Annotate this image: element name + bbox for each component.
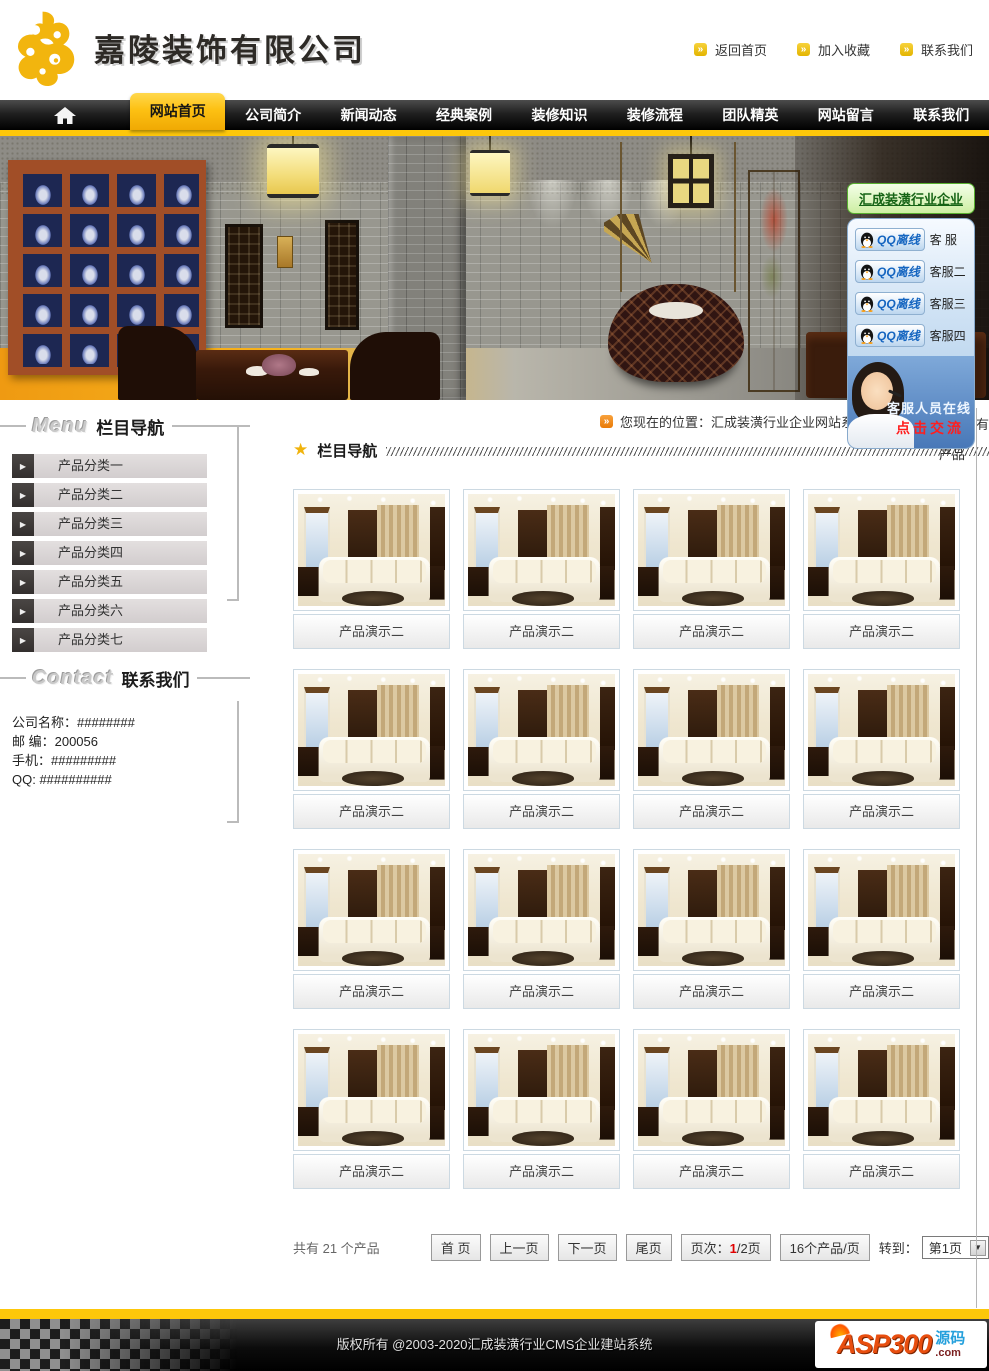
menu-section-header: Menu 栏目导航 [0,415,250,437]
product-photo [298,674,445,786]
photo-panel [770,867,785,930]
top-link-label: 联系我们 [921,40,973,59]
top-links: »返回首页 »加入收藏 »联系我们 [694,40,973,59]
product-card[interactable]: 产品演示二 [803,1029,960,1189]
product-image-frame [293,1029,450,1151]
photo-ottoman [682,951,744,966]
qq-penguin-icon [860,328,874,344]
main-nav: 网站首页 公司简介 新闻动态 经典案例 装修知识 装修流程 团队精英 网站留言 … [0,100,989,130]
product-image-frame [633,489,790,611]
photo-ottoman [512,951,574,966]
photo-panel [940,687,955,750]
photo-curtain-dark [348,690,377,744]
main-panel: » 您现在的位置：汇成装潢行业企业网站系统 有 产品 ★ 栏目导航 [293,400,989,1261]
content-area: Menu 栏目导航 ▶ 产品分类一 ▶ 产品分类二 [0,400,989,1308]
photo-curtain-dark [858,1050,887,1104]
photo-ottoman [342,1131,404,1146]
product-card[interactable]: 产品演示二 [293,849,450,1009]
photo-ottoman [852,771,914,786]
product-card[interactable]: 产品演示二 [633,1029,790,1189]
photo-curtain-dark [518,510,547,564]
banner-wall-art [277,236,293,268]
page: 嘉陵装饰有限公司 »返回首页 »加入收藏 »联系我们 网站首页 公司简介 新闻动… [0,0,989,1371]
contact-info-line: 邮 编：200056 [12,732,250,751]
sidebar: Menu 栏目导航 ▶ 产品分类一 ▶ 产品分类二 [0,400,250,789]
qq-penguin-icon [860,264,874,280]
photo-curtain-dark [688,870,717,924]
product-image-frame [633,849,790,971]
qq-agent-name: 客 服 [930,231,957,248]
banner-door [225,224,263,328]
product-card[interactable]: 产品演示二 [293,489,450,649]
play-arrow-icon: ▶ [12,483,34,507]
product-caption: 产品演示二 [293,974,450,1009]
first-page-button[interactable]: 首 页 [431,1234,481,1261]
prev-page-button[interactable]: 上一页 [490,1234,549,1261]
qq-button-label: QQ离线 [877,295,920,312]
product-photo [298,1034,445,1146]
product-card[interactable]: 产品演示二 [463,489,620,649]
product-caption: 产品演示二 [293,1154,450,1189]
arrow-bullet-icon: » [694,43,707,56]
photo-curtain-dark [348,510,377,564]
qq-agent-row: QQ离线 客服四 [855,324,967,347]
product-photo [808,494,955,606]
breadcrumb-text-suffix: 有 [976,414,989,433]
section-title: 栏目导航 [317,440,377,461]
contact-title-cn: 联系我们 [121,666,189,691]
nav-tab-knowledge[interactable]: 装修知识 [512,100,607,130]
product-caption: 产品演示二 [293,614,450,649]
product-caption: 产品演示二 [463,794,620,829]
qq-agent-name: 客服三 [930,295,966,312]
product-caption: 产品演示二 [633,974,790,1009]
online-status-text: 客服人员在线 [887,398,971,417]
product-card[interactable]: 产品演示二 [633,849,790,1009]
banner-folding-screen [748,170,800,392]
product-card[interactable]: 产品演示二 [803,849,960,1009]
product-caption: 产品演示二 [463,1154,620,1189]
banner-chair [118,326,198,400]
sidebar-category-item[interactable]: ▶ 产品分类一 [12,454,250,478]
photo-panel [770,507,785,570]
top-link[interactable]: »联系我们 [900,40,973,59]
product-photo [468,494,615,606]
nav-tab-process[interactable]: 装修流程 [607,100,702,130]
page-indicator-label: 页次： [691,1241,730,1256]
nav-tab-message[interactable]: 网站留言 [798,100,893,130]
product-grid: 产品演示二 [293,489,960,1189]
page-title: 嘉陵装饰有限公司 [94,25,366,70]
per-page-indicator: 16个产品/页 [780,1234,870,1261]
sidebar-category-item[interactable]: ▶ 产品分类三 [12,512,250,536]
chevron-down-icon: ▼ [970,1240,986,1256]
top-link[interactable]: »返回首页 [694,40,767,59]
product-image-frame [293,489,450,611]
play-arrow-icon: ▶ [12,599,34,623]
photo-ottoman [512,1131,574,1146]
photo-curtain-dark [688,690,717,744]
photo-curtain [887,685,928,743]
last-page-button[interactable]: 尾页 [626,1234,672,1261]
qq-chat-button[interactable]: QQ离线 [855,228,925,251]
banner-chair [350,332,440,400]
photo-curtain-dark [688,510,717,564]
asp300-logo[interactable]: ASP300 源码 .com [815,1321,987,1368]
divider-line [0,425,26,427]
product-card[interactable]: 产品演示二 [633,669,790,829]
product-caption: 产品演示二 [633,1154,790,1189]
contact-info: 公司名称：######## 邮 编：200056 手机：######### QQ… [12,713,250,789]
product-card[interactable]: 产品演示二 [803,669,960,829]
photo-panel [430,867,445,930]
sidebar-category-item[interactable]: ▶ 产品分类四 [12,541,250,565]
banner-lamp-cord [690,136,692,154]
contact-section-header: Contact 联系我们 [0,667,250,689]
site-footer: 版权所有 @2003-2020汇成装潢行业CMS企业建站系统 ASP300 源码… [0,1319,989,1371]
breadcrumb-arrow-icon: » [600,415,613,428]
qq-panel-title: 汇成装潢行业企业 [847,183,975,214]
banner-swing-rope [734,142,736,292]
divider-line [197,677,250,679]
photo-curtain [547,685,588,743]
sidebar-category-item[interactable]: ▶ 产品分类六 [12,599,250,623]
product-image-frame [803,669,960,791]
banner-swing-rope [620,142,622,292]
photo-curtain-dark [518,870,547,924]
qq-panel-body: QQ离线 客 服 QQ离线 客服二 [847,218,975,449]
asp300-cn-text: 源码 [935,1331,965,1346]
contact-info-line: 手机：######### [12,751,250,770]
nav-tab-cases[interactable]: 经典案例 [416,100,511,130]
product-photo [638,854,785,966]
qq-penguin-icon [860,296,874,312]
qq-penguin-icon [860,232,874,248]
photo-curtain-dark [858,510,887,564]
product-image-frame [803,489,960,611]
qq-agent-row: QQ离线 客 服 [855,228,967,251]
photo-ottoman [342,951,404,966]
photo-ottoman [852,591,914,606]
photo-curtain [887,505,928,563]
product-image-frame [463,1029,620,1151]
photo-panel [430,687,445,750]
category-label: 产品分类七 [34,628,207,652]
photo-curtain [547,865,588,923]
nav-tab-about[interactable]: 公司简介 [225,100,320,130]
total-pages-text: /2页 [737,1241,761,1256]
nav-tab-contact[interactable]: 联系我们 [894,100,989,130]
sidebar-category-item[interactable]: ▶ 产品分类五 [12,570,250,594]
asp300-domain-text: .com [935,1348,965,1359]
nav-tab-home[interactable]: 网站首页 [130,93,225,130]
qq-chat-button[interactable]: QQ离线 [855,292,925,315]
category-label: 产品分类六 [34,599,207,623]
pagination-bar: 共有 21 个产品 首 页 上一页 下一页 尾页 页次：1/2页 16个产品/页… [293,1234,989,1261]
product-image-frame [463,669,620,791]
nav-home-button[interactable] [0,100,130,130]
product-image-frame [633,669,790,791]
qq-agent-row: QQ离线 客服二 [855,260,967,283]
product-count-text: 共有 21 个产品 [293,1238,380,1257]
product-caption: 产品演示二 [293,794,450,829]
menu-title-cn: 栏目导航 [96,414,164,439]
product-photo [638,674,785,786]
qq-button-label: QQ离线 [877,231,920,248]
photo-panel [770,687,785,750]
product-photo [638,494,785,606]
contact-info-line: 公司名称：######## [12,713,250,732]
qq-agent-row: QQ离线 客服三 [855,292,967,315]
product-caption: 产品演示二 [633,794,790,829]
pagination-controls: 首 页 上一页 下一页 尾页 页次：1/2页 16个产品/页 转到： 第1页 ▼ [431,1234,989,1261]
product-caption: 产品演示二 [633,614,790,649]
photo-curtain-dark [858,690,887,744]
photo-ottoman [342,591,404,606]
photo-curtain [377,865,418,923]
category-menu: ▶ 产品分类一 ▶ 产品分类二 ▶ 产品分类三 ▶ [12,454,250,652]
photo-panel [600,1047,615,1110]
current-page-number: 1 [730,1241,737,1256]
photo-curtain [547,505,588,563]
menu-title-en: Menu [32,415,88,438]
product-photo [298,494,445,606]
product-photo [808,674,955,786]
photo-ottoman [852,1131,914,1146]
photo-ottoman [852,951,914,966]
product-caption: 产品演示二 [803,1154,960,1189]
category-label: 产品分类四 [34,541,207,565]
qq-service-panel: 汇成装潢行业企业 QQ离线 客 服 QQ离 [847,183,975,449]
home-icon [54,107,76,124]
photo-curtain [377,505,418,563]
product-card[interactable]: 产品演示二 [463,1029,620,1189]
photo-curtain [547,1045,588,1103]
product-card[interactable]: 产品演示二 [463,669,620,829]
goto-label: 转到： [879,1238,918,1257]
photo-panel [430,1047,445,1110]
photo-curtain-dark [348,870,377,924]
product-image-frame [633,1029,790,1151]
page-select-dropdown[interactable]: 第1页 ▼ [922,1236,989,1259]
product-card[interactable]: 产品演示二 [633,489,790,649]
play-arrow-icon: ▶ [12,512,34,536]
product-card[interactable]: 产品演示二 [803,489,960,649]
contact-bracket-line [227,701,239,823]
photo-panel [600,507,615,570]
qq-chat-button[interactable]: QQ离线 [855,324,925,347]
photo-panel [940,867,955,930]
top-link-label: 返回首页 [715,40,767,59]
photo-ottoman [512,771,574,786]
contact-title-en: Contact [32,667,113,690]
photo-ottoman [512,591,574,606]
nav-tab-news[interactable]: 新闻动态 [321,100,416,130]
photo-ottoman [682,771,744,786]
photo-ottoman [342,771,404,786]
dragon-logo-icon [6,6,84,88]
photo-panel [940,507,955,570]
photo-panel [940,1047,955,1110]
product-photo [468,674,615,786]
product-image-frame [803,1029,960,1151]
product-caption: 产品演示二 [803,794,960,829]
top-link[interactable]: »加入收藏 [797,40,870,59]
arrow-bullet-icon: » [900,43,913,56]
play-arrow-icon: ▶ [12,541,34,565]
product-image-frame [463,489,620,611]
top-link-label: 加入收藏 [818,40,870,59]
page-indicator: 页次：1/2页 [681,1234,771,1261]
product-photo [808,854,955,966]
banner-lamp [267,144,319,198]
qq-agent-name: 客服二 [930,263,966,280]
site-header: 嘉陵装饰有限公司 »返回首页 »加入收藏 »联系我们 [0,0,989,100]
category-label: 产品分类五 [34,570,207,594]
category-label: 产品分类三 [34,512,207,536]
photo-curtain [717,505,758,563]
product-photo [638,1034,785,1146]
photo-ottoman [682,1131,744,1146]
goto-page-control: 转到： 第1页 ▼ [879,1236,989,1259]
product-image-frame [293,669,450,791]
qq-agent-list: QQ离线 客 服 QQ离线 客服二 [855,228,967,347]
photo-curtain-dark [858,870,887,924]
photo-curtain [887,1045,928,1103]
next-page-button[interactable]: 下一页 [558,1234,617,1261]
page-select-value: 第1页 [929,1238,962,1257]
photo-curtain [377,1045,418,1103]
banner-lamp [470,150,510,196]
click-to-chat-link[interactable]: 点击交流 [896,418,964,438]
banner-teapot [262,354,296,376]
category-label: 产品分类一 [34,454,207,478]
qq-button-label: QQ离线 [877,327,920,344]
asp300-brand-text: ASP300 [837,1329,932,1360]
product-caption: 产品演示二 [803,614,960,649]
arrow-bullet-icon: » [797,43,810,56]
logo-group: 嘉陵装饰有限公司 [6,6,366,88]
product-caption: 产品演示二 [463,974,620,1009]
photo-curtain [717,1045,758,1103]
photo-panel [600,867,615,930]
product-photo [298,854,445,966]
category-label: 产品分类二 [34,483,207,507]
nav-tab-team[interactable]: 团队精英 [703,100,798,130]
product-card[interactable]: 产品演示二 [293,669,450,829]
banner-image [0,136,989,400]
qq-agent-name: 客服四 [930,327,966,344]
qq-button-label: QQ离线 [877,263,920,280]
product-image-frame [463,849,620,971]
product-caption: 产品演示二 [463,614,620,649]
play-arrow-icon: ▶ [12,454,34,478]
photo-panel [600,687,615,750]
play-arrow-icon: ▶ [12,570,34,594]
contact-info-line: QQ: ########## [12,770,250,789]
photo-curtain [717,685,758,743]
product-caption: 产品演示二 [803,974,960,1009]
photo-curtain [717,865,758,923]
sidebar-category-item[interactable]: ▶ 产品分类二 [12,483,250,507]
star-icon: ★ [293,440,308,460]
qq-chat-button[interactable]: QQ离线 [855,260,925,283]
product-photo [468,854,615,966]
photo-ottoman [682,591,744,606]
photo-curtain [377,685,418,743]
qq-online-box: 客服人员在线 点击交流 [848,356,974,448]
footer-accent-strip [0,1308,989,1319]
divider-line [0,677,26,679]
product-image-frame [803,849,960,971]
photo-curtain-dark [518,690,547,744]
product-card[interactable]: 产品演示二 [463,849,620,1009]
banner-lantern [668,154,714,208]
menu-bracket-line [227,425,239,601]
photo-panel [770,1047,785,1110]
product-image-frame [293,849,450,971]
breadcrumb-text: 您现在的位置：汇成装潢行业企业网站系统 [620,412,867,431]
product-photo [808,1034,955,1146]
photo-curtain [887,865,928,923]
play-arrow-icon: ▶ [12,628,34,652]
sidebar-category-item[interactable]: ▶ 产品分类七 [12,628,250,652]
banner-door [325,220,359,330]
photo-curtain-dark [518,1050,547,1104]
photo-curtain-dark [688,1050,717,1104]
photo-panel [430,507,445,570]
product-photo [468,1034,615,1146]
product-card[interactable]: 产品演示二 [293,1029,450,1189]
photo-curtain-dark [348,1050,377,1104]
